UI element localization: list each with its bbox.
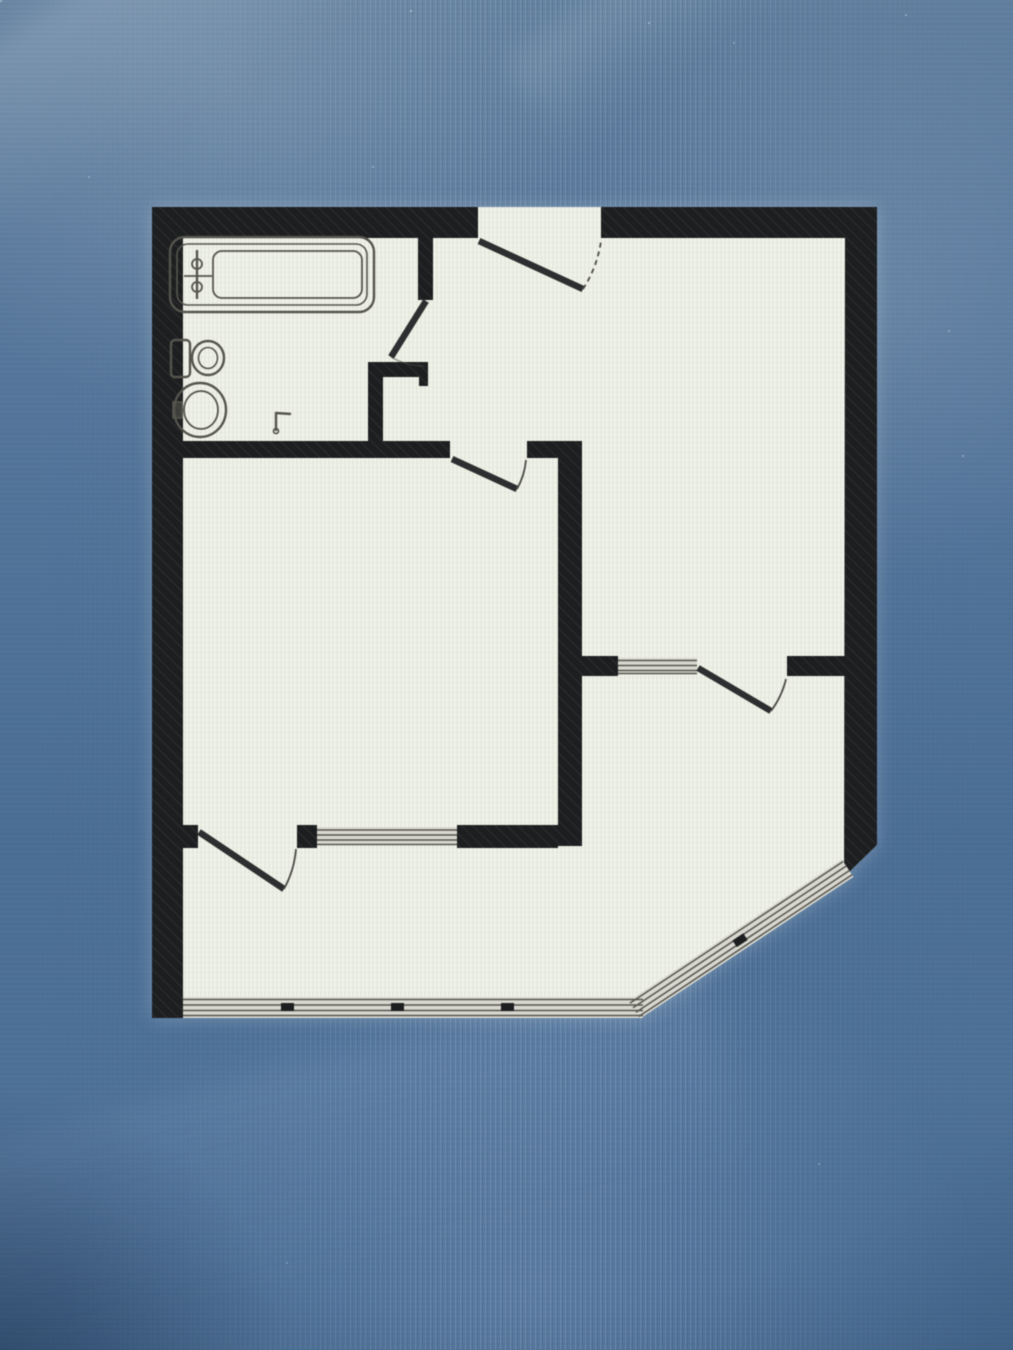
photo-of-floor-plan-on-screen bbox=[0, 0, 1013, 1350]
photo-vignette bbox=[0, 0, 1013, 1350]
